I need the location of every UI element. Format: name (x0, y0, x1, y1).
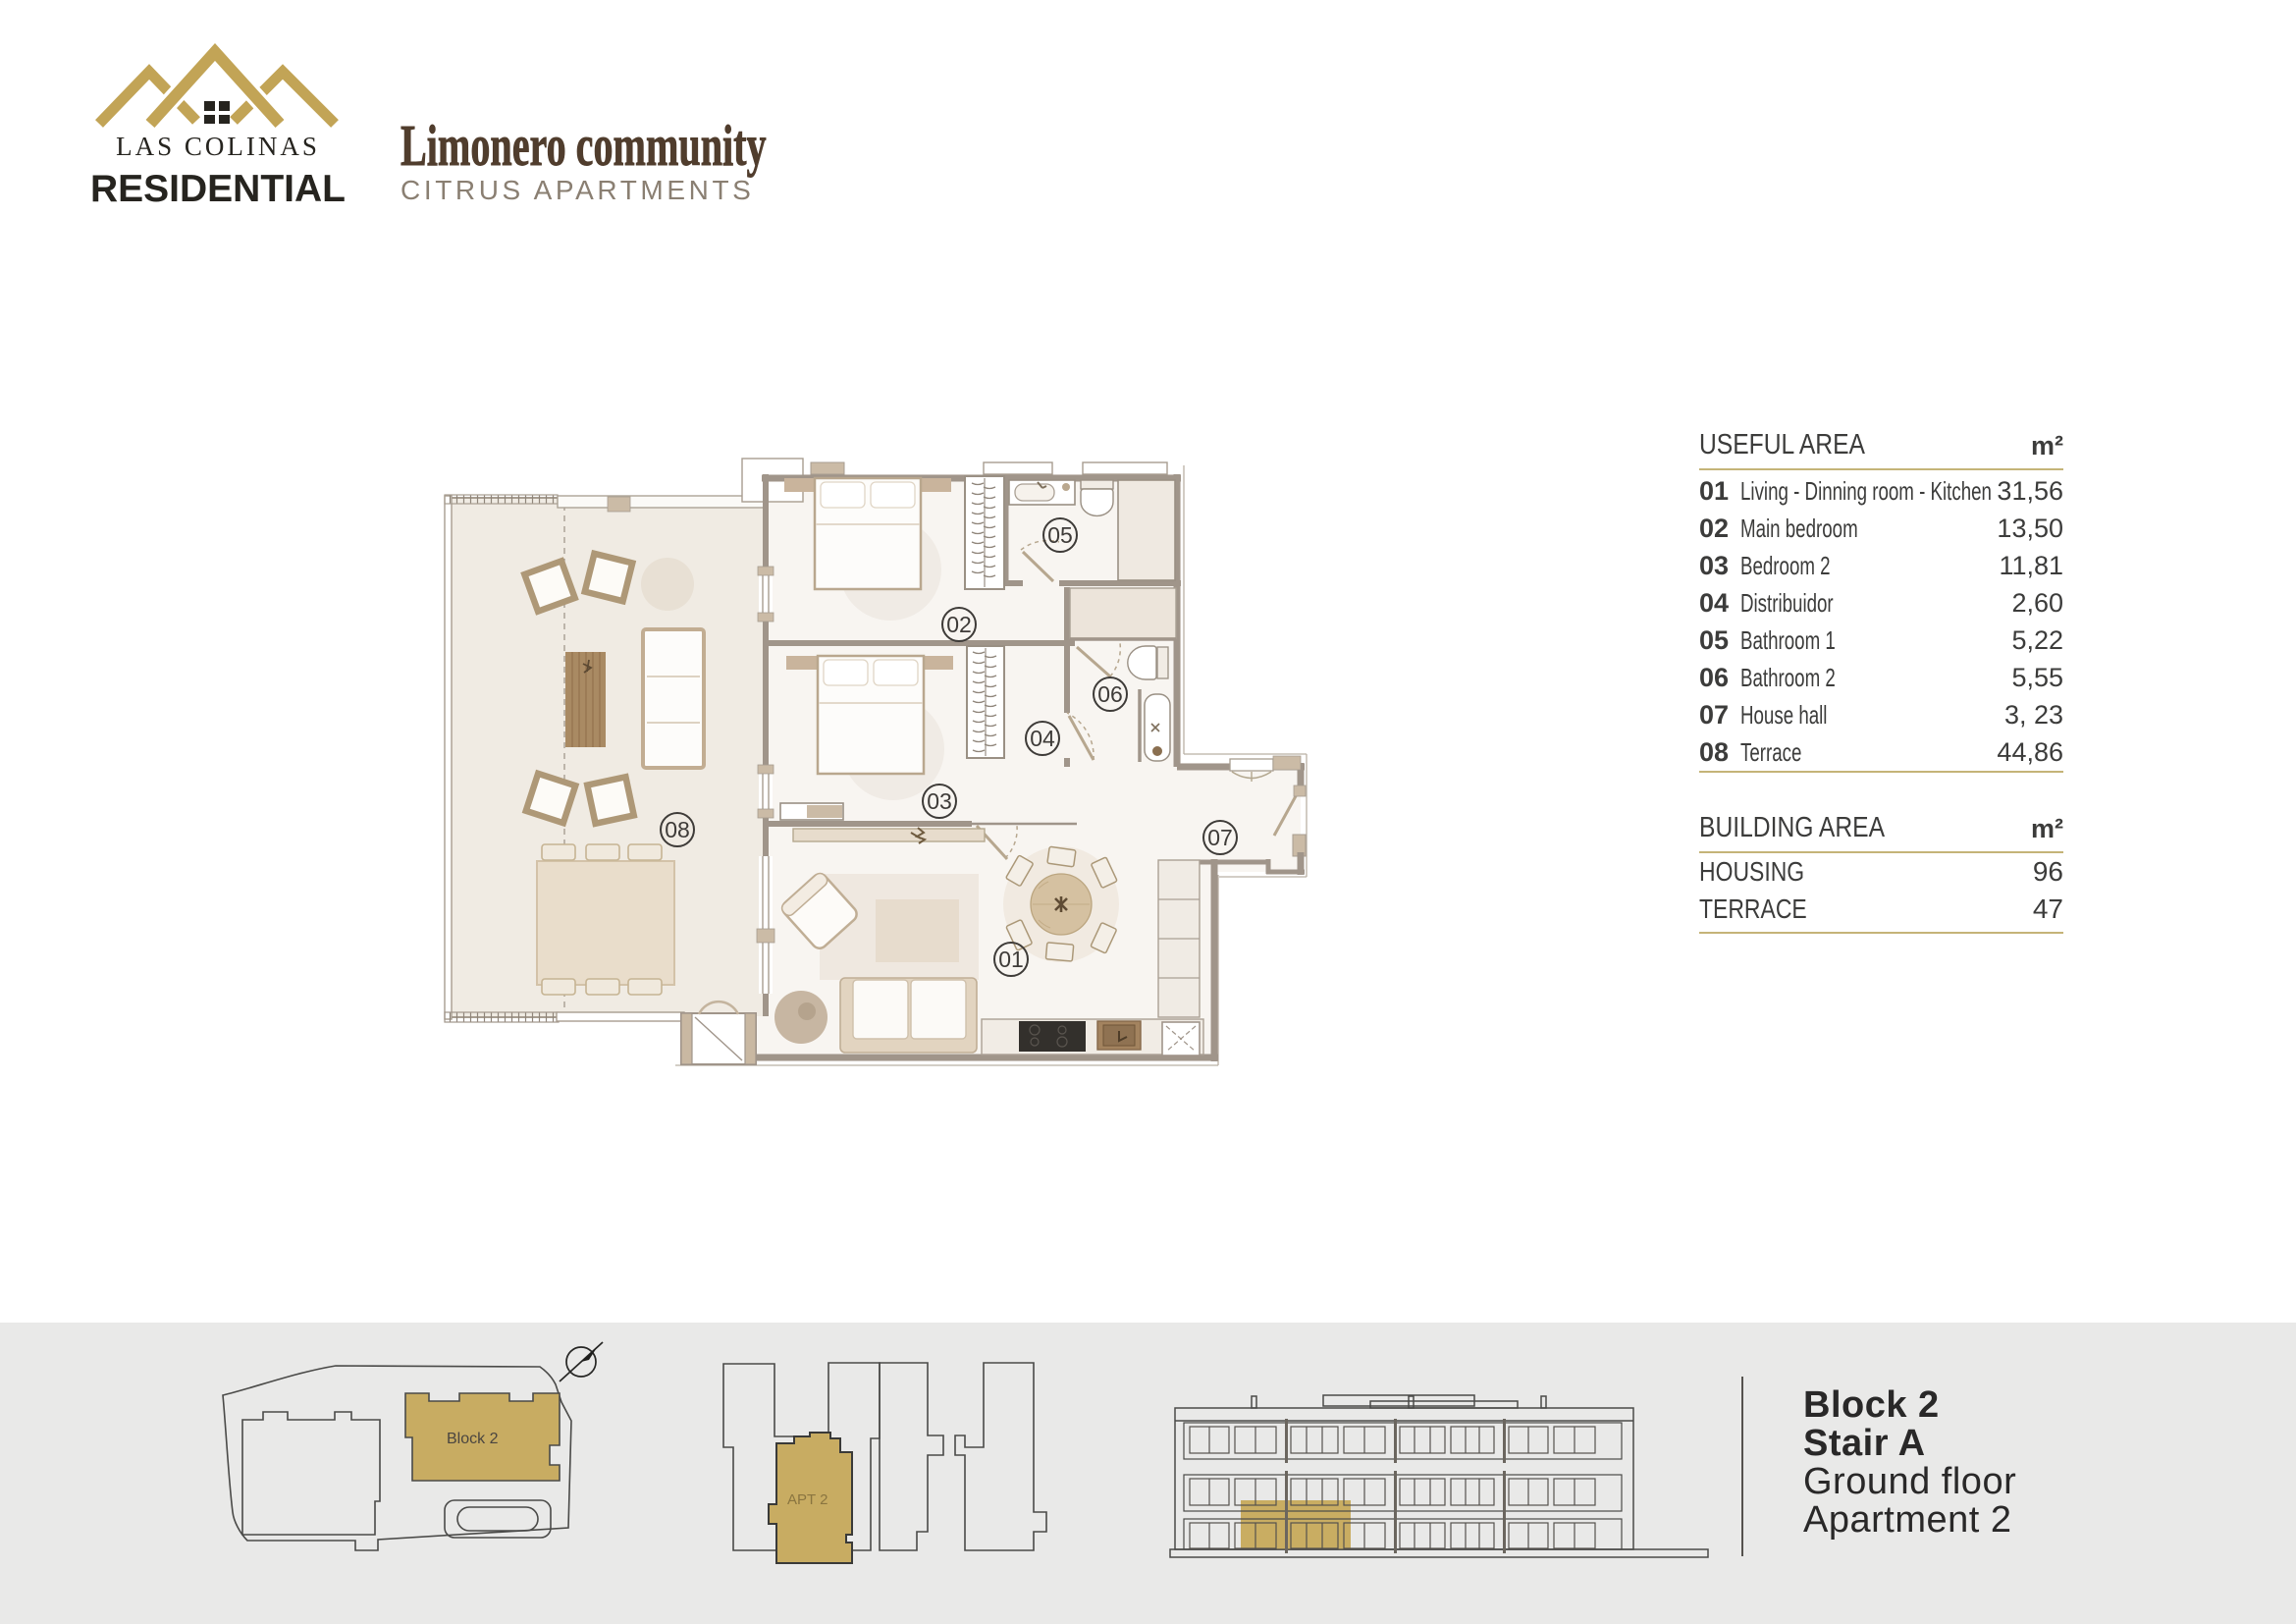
svg-text:APT 2: APT 2 (787, 1491, 828, 1508)
svg-text:Block 2: Block 2 (447, 1431, 499, 1447)
